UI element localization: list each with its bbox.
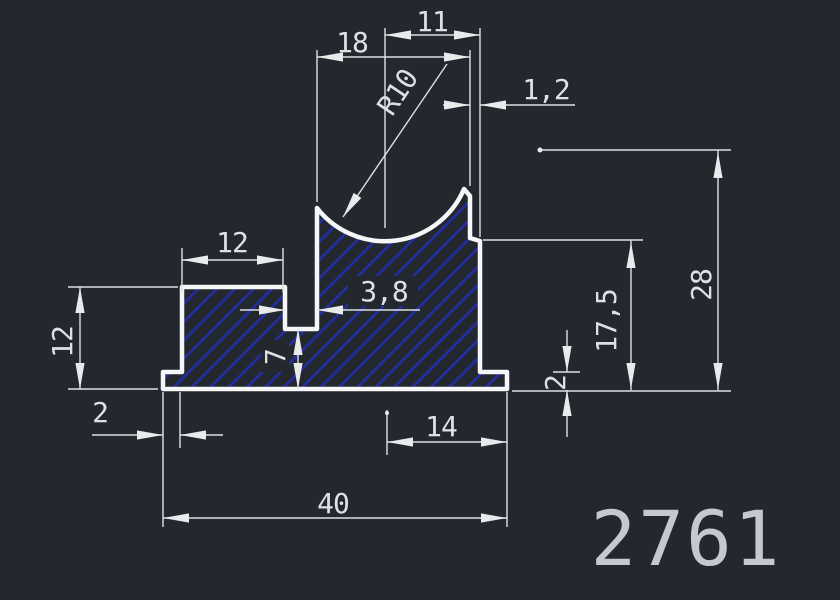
reference-dot-small	[385, 411, 389, 415]
dim-label-bottom-right-width: 14	[425, 410, 457, 443]
cad-drawing-svg: 11 18 1,2 R10 12 3,8 12 7 2 14 40 2 17,5…	[0, 0, 840, 600]
dim-label-right-side-height: 17,5	[590, 289, 623, 352]
dim-label-slot-width: 3,8	[360, 275, 408, 308]
dim-label-base-thickness: 2	[539, 375, 572, 391]
dim-label-left-block-height: 12	[46, 326, 79, 358]
dim-label-top-groove-width: 18	[336, 26, 368, 59]
dim-label-top-small-width: 11	[416, 5, 448, 38]
dim-label-right-lip-offset: 1,2	[522, 73, 570, 106]
dim-label-slot-floor-thickness: 7	[259, 349, 292, 365]
cad-drawing-canvas: 11 18 1,2 R10 12 3,8 12 7 2 14 40 2 17,5…	[0, 0, 840, 600]
dim-label-overall-width: 40	[317, 487, 349, 520]
dim-label-left-block-width: 12	[216, 226, 248, 259]
part-number-label: 2761	[590, 494, 781, 583]
dim-label-left-foot-width: 2	[92, 396, 108, 429]
dim-label-overall-height: 28	[685, 269, 718, 301]
reference-dot	[538, 148, 543, 153]
